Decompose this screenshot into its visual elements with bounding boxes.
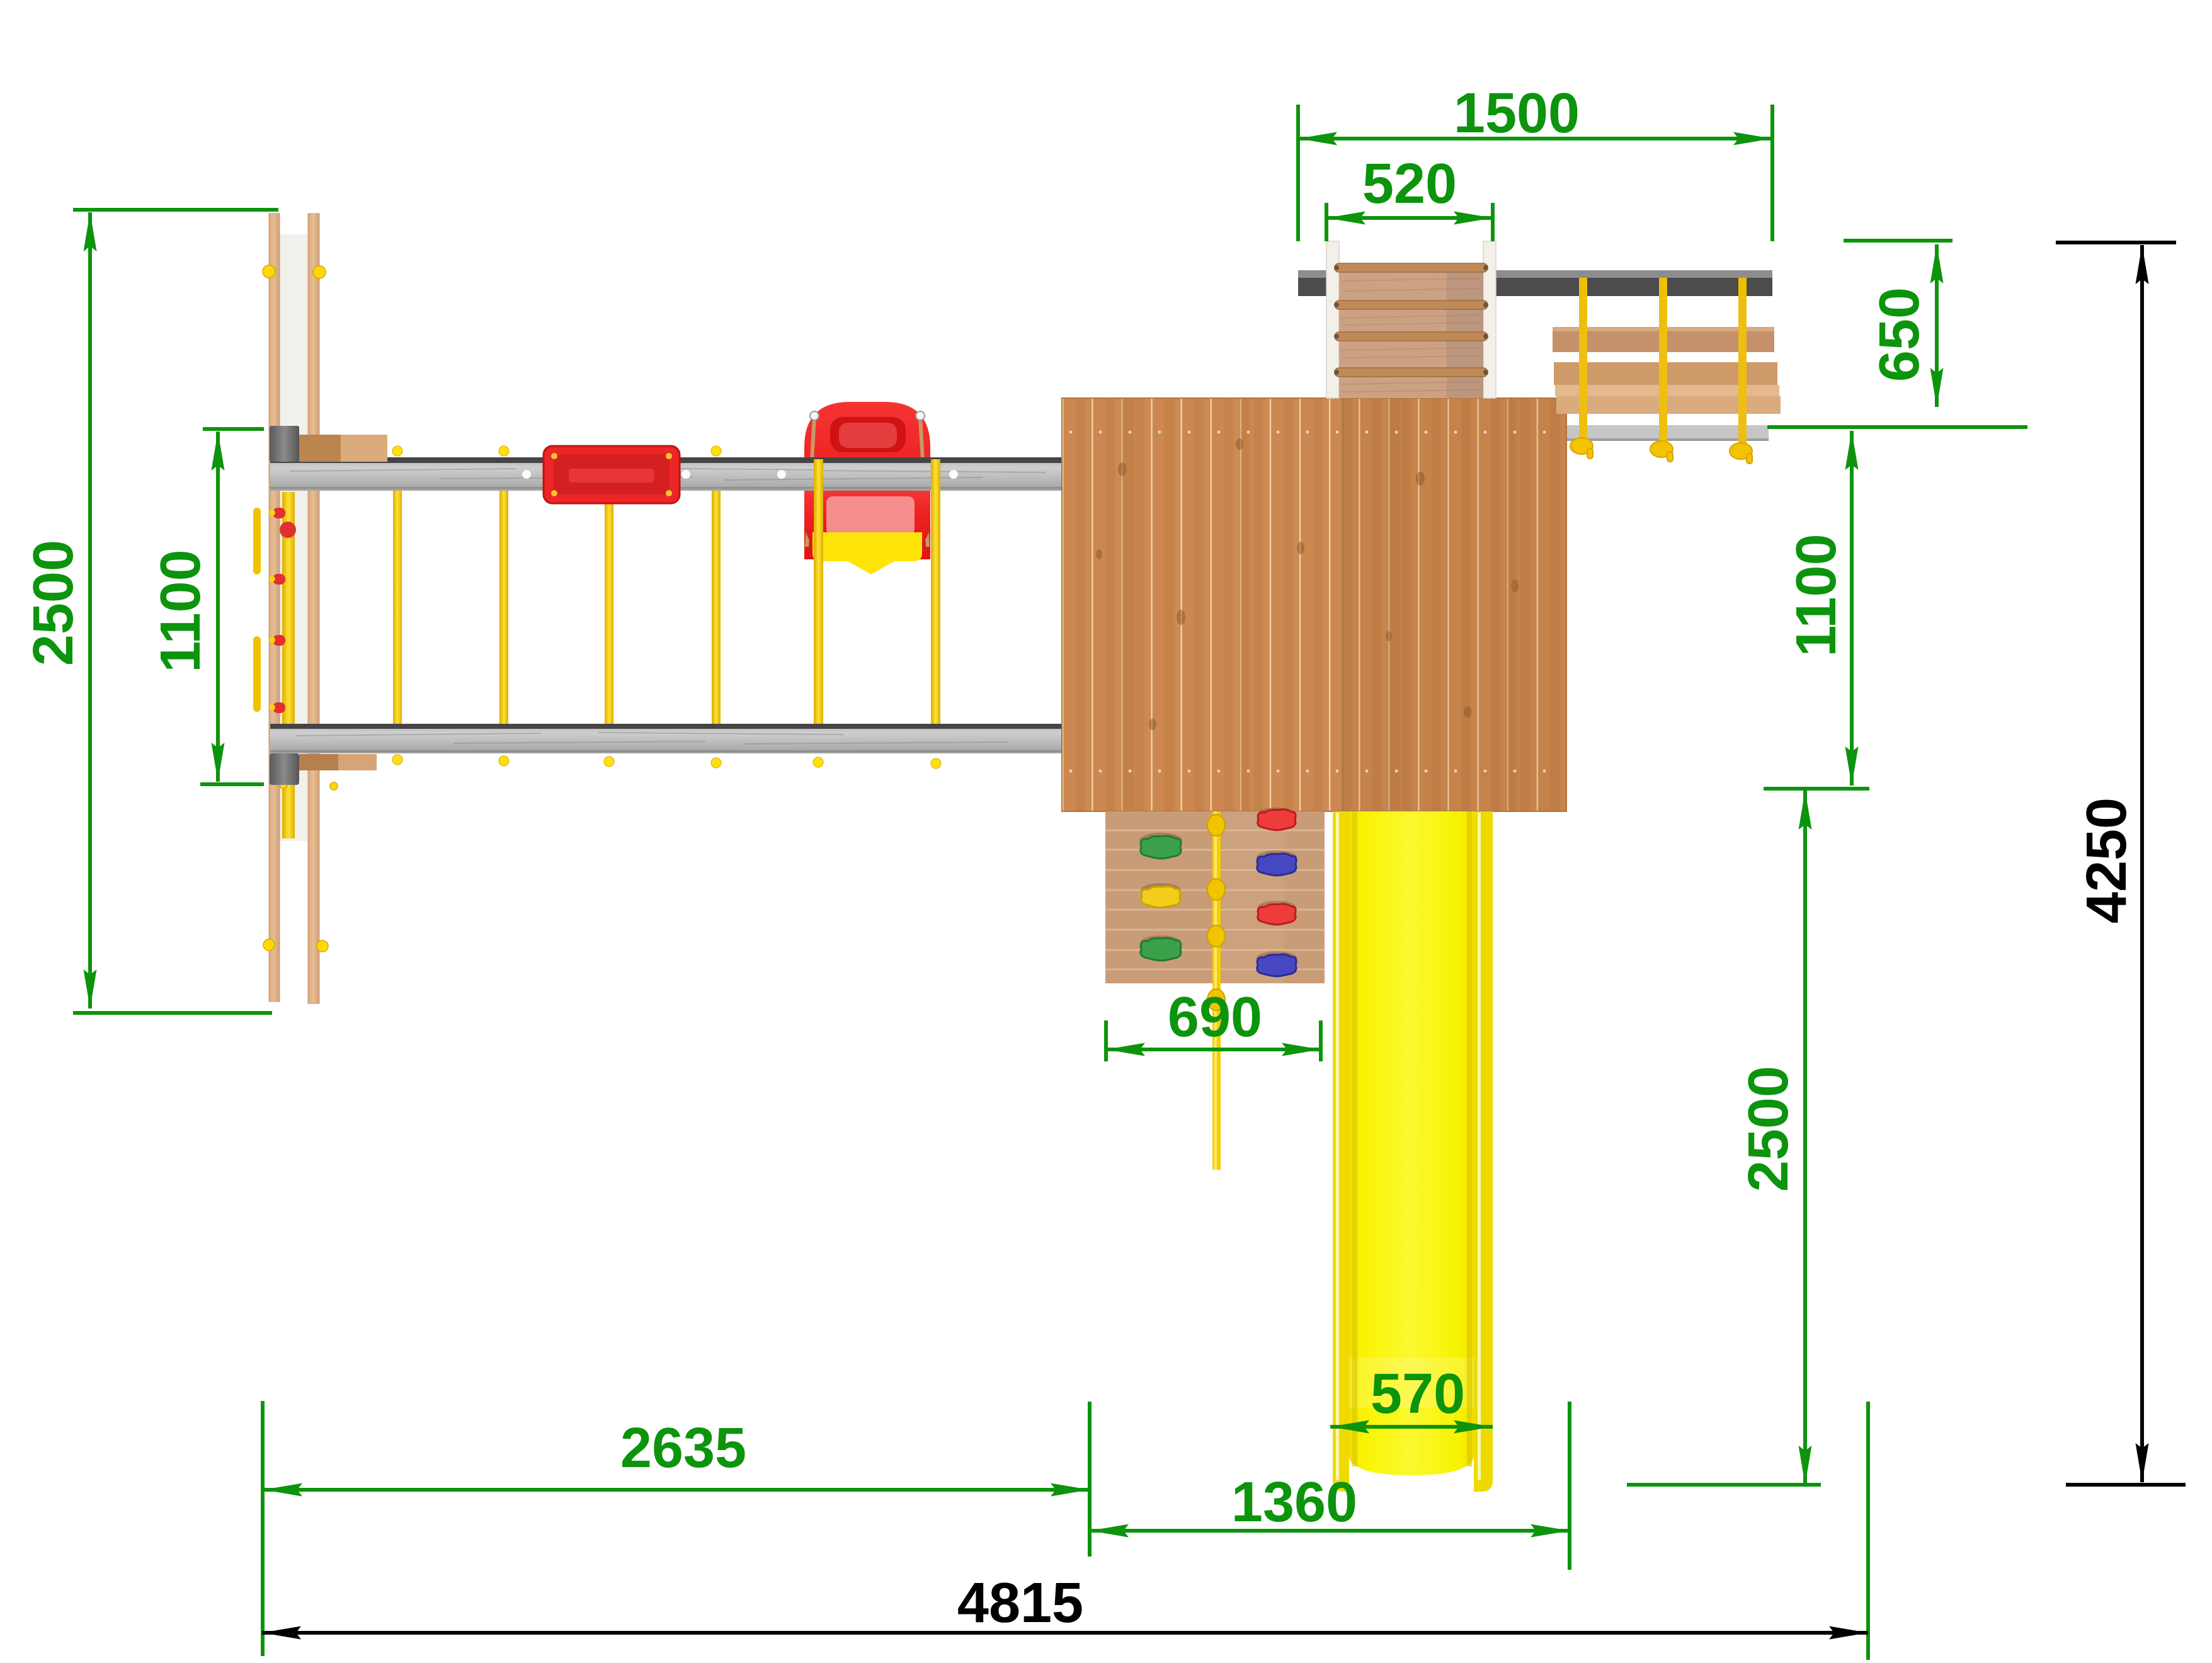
svg-text:1100: 1100 [149,549,212,672]
svg-text:570: 570 [1371,1363,1465,1426]
svg-text:1100: 1100 [1785,534,1848,656]
svg-text:2635: 2635 [620,1417,746,1480]
svg-text:1500: 1500 [1454,82,1580,145]
svg-text:2500: 2500 [1737,1066,1800,1192]
svg-text:650: 650 [1868,287,1931,382]
svg-text:4250: 4250 [2075,797,2138,923]
svg-text:2500: 2500 [22,540,85,666]
svg-text:4815: 4815 [957,1572,1083,1635]
svg-text:520: 520 [1362,152,1457,215]
svg-text:1360: 1360 [1231,1471,1357,1534]
svg-text:690: 690 [1168,986,1262,1049]
